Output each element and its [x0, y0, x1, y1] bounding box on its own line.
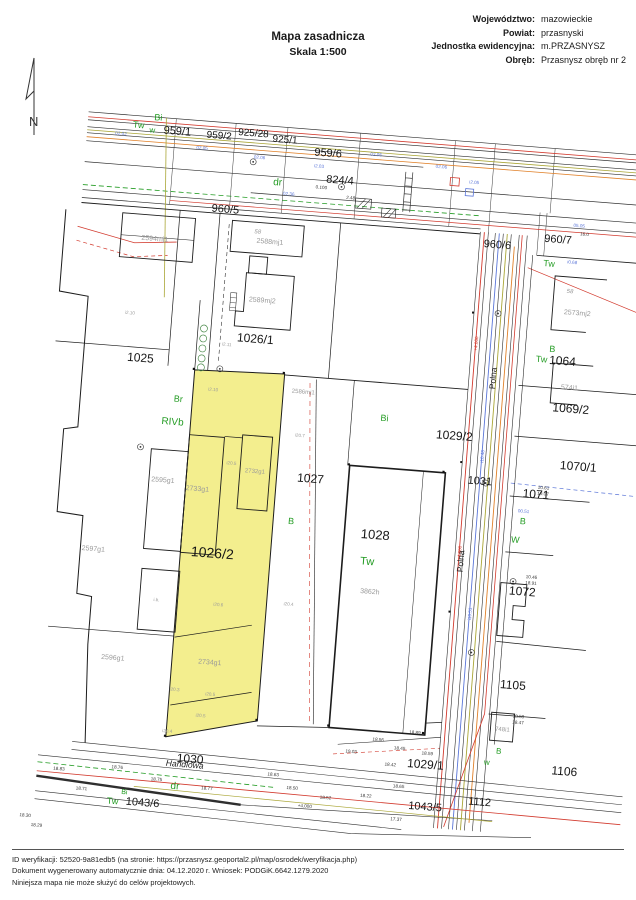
micro-label: 18.22 [360, 793, 372, 799]
landuse-label: w [483, 758, 491, 768]
meta-value: mazowieckie [541, 14, 626, 24]
buildings-label: 2596g1 [101, 654, 125, 663]
micro-annotations: 02.0202.0502.06i2.0302.0502.06i2.0505.05… [19, 127, 595, 867]
parcels-label: 959/1 [163, 125, 191, 139]
landuse-label: w [148, 125, 156, 135]
parcels-label: 925/1 [272, 134, 298, 147]
parcels-label: 1112 [468, 796, 492, 810]
parcels-label: 1072 [508, 583, 536, 599]
micro-label: 18.63 [267, 771, 279, 777]
landuse-label: B [288, 516, 295, 526]
streets-label: Polna [487, 367, 499, 390]
parcels-label: 960/5 [211, 203, 239, 217]
micro-label: i.b. [153, 597, 160, 602]
micro-label: i2.03 [314, 163, 325, 169]
footer: ID weryfikacji: 52520-9a81edb5 (na stron… [12, 849, 624, 888]
micro-label: i2.11 [222, 342, 232, 348]
parcels-label: 1064 [549, 353, 577, 369]
landuse-label: Bi [154, 112, 163, 123]
parcels-label: 1106 [551, 763, 578, 779]
micro-label: i0.68 [567, 259, 578, 265]
culvert-ladder-symbol [403, 172, 413, 212]
micro-label: 18.56 [372, 737, 384, 743]
micro-label: i20.4 [283, 601, 294, 607]
micro-label: +4.000 [473, 336, 479, 351]
parcels-label: 1028 [360, 526, 390, 543]
parcels-label: 1026/2 [190, 543, 234, 562]
micro-label: 18.75 [151, 776, 163, 782]
landuse-label: Bi [380, 413, 389, 424]
micro-label: 2.48 [346, 195, 356, 201]
buildings-label: 574i1 [561, 384, 579, 392]
micro-label: 58 [254, 229, 262, 236]
micro-label: 02.05 [370, 152, 382, 158]
buildings-label: 2573mj2 [564, 309, 591, 318]
parcels-label: 1043/5 [408, 800, 442, 815]
parcels-label: 1025 [127, 350, 155, 366]
parcels-label: 1029/2 [435, 427, 473, 444]
micro-label: i2.10 [208, 387, 219, 393]
verification-id-line: ID weryfikacji: 52520-9a81edb5 (na stron… [12, 854, 624, 865]
parcels-label: 960/7 [544, 233, 572, 247]
micro-label: 18.45 [394, 745, 406, 751]
landuse-label: Tw [106, 795, 119, 806]
generation-info-line: Dokument wygenerowany automatycznie dnia… [12, 865, 624, 876]
parcels-label: 1030 [176, 751, 204, 767]
map-sheet: N [0, 0, 636, 900]
micro-label: i20.5 [205, 691, 216, 697]
buildings-label: 2586mj1 [292, 389, 316, 397]
meta-label: Obręb: [431, 55, 535, 65]
landuse-label: Tw [535, 354, 548, 365]
base-map: N [0, 0, 636, 900]
micro-label: 18.52 [320, 795, 332, 801]
micro-label: i20.6 [213, 602, 224, 608]
parcels-label: 1105 [500, 677, 527, 693]
building-1028 [329, 465, 445, 735]
micro-label: 02.02 [115, 131, 127, 137]
landuse-label: Tw [543, 258, 556, 269]
buildings-label: 2597g1 [81, 545, 105, 554]
micro-label: 18.50 [286, 785, 298, 791]
north-label: N [29, 114, 38, 129]
map-title: Mapa zasadnicza [158, 31, 478, 43]
micro-label: 18.77 [201, 785, 213, 791]
parcels-label: 1069/2 [552, 400, 590, 417]
micro-label: i2.10 [125, 310, 136, 316]
meta-value: m.PRZASNYSZ [541, 41, 626, 51]
micro-label: 02.06 [435, 164, 447, 170]
micro-label: 18.59 [421, 750, 433, 756]
micro-label: 17.37 [390, 816, 402, 822]
landuse-label: dr [170, 781, 180, 793]
micro-label: i20.4 [162, 728, 173, 734]
micro-label: 18.83 [53, 766, 65, 772]
micro-label: 02.05 [196, 145, 208, 151]
micro-label: 18.29 [31, 822, 43, 828]
buildings-label: 2588mj1 [256, 238, 283, 247]
micro-label: 18.42 [384, 762, 396, 768]
micro-label: 05.05 [573, 223, 585, 229]
disclaimer-line: Niniejsza mapa nie może służyć do celów … [12, 877, 624, 888]
landuse-label: Tw [133, 119, 146, 130]
parcels-label: 959/6 [314, 146, 342, 160]
micro-label: 10.46 [526, 574, 538, 580]
micro-label: 18.50 [513, 714, 525, 720]
parcels-label: 960/6 [483, 238, 511, 252]
meta-value: Przasnysz obręb nr 2 [541, 55, 626, 65]
top-road-utilities [60, 112, 636, 498]
micro-label: 19.03 [345, 749, 357, 755]
meta-label: Powiat: [431, 28, 535, 38]
micro-label: i20.7 [295, 433, 306, 439]
landuse-label: W [511, 534, 521, 545]
parcels-label: 1071 [522, 486, 550, 502]
buildings-label: 748i1 [495, 727, 511, 734]
micro-label: 18.76 [111, 764, 123, 770]
tree-symbols [197, 325, 208, 371]
micro-label: 00.51 [518, 508, 530, 514]
meta-label: Jednostka ewidencyjna: [431, 41, 535, 51]
micro-label: i20.5 [226, 460, 237, 466]
micro-label: +4.000 [298, 803, 313, 809]
meta-value: przasnyski [541, 28, 626, 38]
parcels-label: 824/4 [326, 173, 354, 187]
parcels-label: 1031 [467, 475, 492, 489]
buildings-label: 2595g1 [151, 476, 175, 485]
parcels-label: 1043/6 [125, 796, 159, 811]
landuse-label: Br [173, 394, 183, 405]
micro-label: 16.0 [580, 231, 590, 237]
meta-label: Województwo: [431, 14, 535, 24]
micro-label: i10.51 [467, 607, 473, 620]
parcels-label: 959/2 [206, 130, 232, 143]
micro-label: 18.89 [409, 729, 421, 735]
map-scale: Skala 1:500 [158, 46, 478, 58]
parcels-label: 1029/1 [407, 756, 445, 773]
micro-label: 18.47 [512, 720, 524, 726]
landuse-label: RIVb [161, 416, 184, 429]
micro-label: 18.71 [76, 785, 88, 791]
buildings-label: 2589mj2 [249, 296, 276, 305]
landuse-label: dr [273, 177, 283, 189]
micro-label: i20.5 [195, 713, 206, 719]
micro-label: i20.3 [169, 687, 180, 693]
micro-label: i10.48 [479, 449, 485, 462]
parcels-label: 1070/1 [559, 458, 597, 475]
parcels-label: 1027 [297, 470, 325, 486]
landuse-label: Tw [360, 555, 375, 568]
streets-label: Polna [455, 550, 467, 573]
micro-label: 02.36 [283, 191, 295, 197]
landuse-label: B [519, 516, 526, 526]
landuse-label: B [496, 747, 502, 756]
micro-label: i2.05 [469, 179, 480, 185]
micro-label: 02.06 [254, 154, 266, 160]
polna-street-lines [433, 232, 527, 832]
micro-label: 18.65 [393, 783, 405, 789]
parcels-label: 925/28 [238, 127, 270, 140]
north-arrow-icon: N [26, 58, 38, 135]
title-block: Mapa zasadnicza Skala 1:500 [158, 31, 478, 58]
micro-label: 58 [566, 289, 574, 296]
parcels-label: 1026/1 [236, 330, 274, 347]
admin-metadata: Województwo: mazowieckie Powiat: przasny… [431, 14, 626, 65]
micro-label: 18.30 [19, 812, 31, 818]
